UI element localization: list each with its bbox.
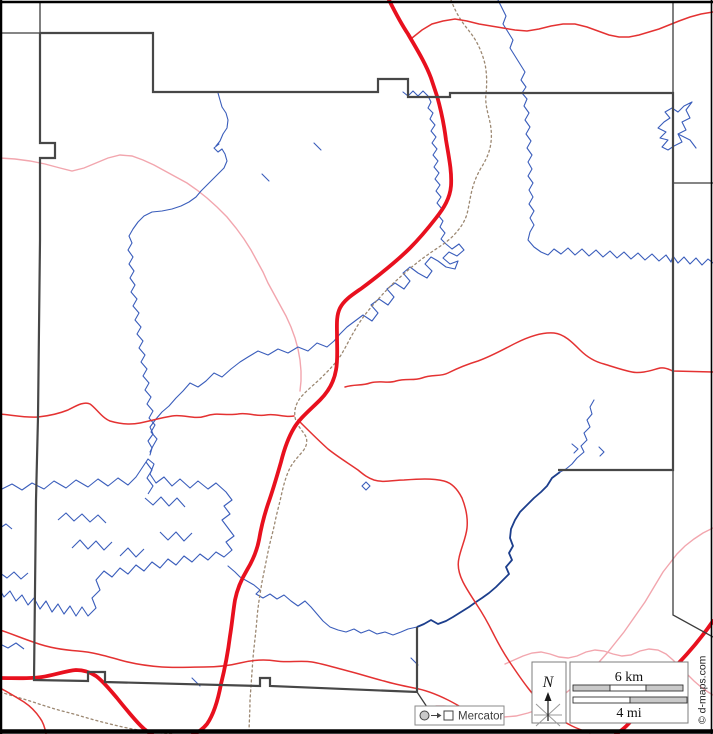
lake-finger-5 bbox=[120, 548, 144, 557]
stream-tick-3 bbox=[362, 482, 370, 490]
stream-tick-7 bbox=[599, 447, 604, 456]
scale-km-label: 6 km bbox=[615, 670, 644, 685]
north-label: N bbox=[542, 674, 555, 691]
north-indicator: N bbox=[532, 662, 566, 726]
scale-mi-label: 4 mi bbox=[616, 706, 641, 721]
map-canvas: N 6 km 4 mi Me bbox=[0, 0, 713, 734]
lake-west-bit-1 bbox=[0, 572, 28, 579]
lake-finger-3 bbox=[145, 497, 185, 507]
lake-arm-north bbox=[146, 462, 153, 494]
lake-finger-1 bbox=[58, 513, 106, 523]
river-middle-meanders bbox=[148, 91, 464, 455]
lake-finger-2 bbox=[72, 540, 112, 550]
lake-west-bit-3 bbox=[0, 643, 24, 649]
map-frame bbox=[0, 0, 713, 734]
scale-bar: 6 km 4 mi bbox=[570, 662, 688, 723]
pink-road-northwest-diagonal bbox=[0, 155, 301, 391]
pond-northeast bbox=[658, 102, 696, 150]
flat-map-square-icon bbox=[444, 711, 453, 720]
outline-map: N 6 km 4 mi Me bbox=[0, 0, 713, 734]
trail-main bbox=[249, 0, 491, 734]
trail-bottom-left bbox=[0, 692, 172, 734]
stream-tick-2 bbox=[314, 143, 321, 150]
projection-label: Mercator bbox=[458, 711, 504, 723]
dashed-trails bbox=[0, 0, 491, 734]
red-road-bottom-left bbox=[0, 688, 46, 734]
river-south-headwater bbox=[560, 400, 594, 472]
highway-main bbox=[193, 0, 451, 734]
scale-mi-bar bbox=[573, 697, 687, 703]
lake-finger-4 bbox=[160, 532, 192, 541]
red-road-east-from-junction bbox=[345, 333, 713, 387]
river-bottom bbox=[228, 566, 417, 635]
rivers bbox=[128, 0, 713, 686]
copyright-text: © d-maps.com bbox=[697, 655, 709, 724]
neighbor-boundaries bbox=[0, 2, 713, 712]
projection-legend: Mercator bbox=[415, 706, 504, 725]
red-road-west-from-junction bbox=[0, 403, 294, 424]
stream-tick-1 bbox=[262, 174, 269, 181]
stream-tick-6 bbox=[572, 444, 578, 453]
globe-circle-icon bbox=[420, 711, 429, 720]
scale-km-bar bbox=[573, 685, 683, 691]
highways bbox=[0, 0, 713, 734]
red-roads bbox=[0, 12, 713, 734]
river-west bbox=[128, 93, 228, 452]
red-road-top-east bbox=[412, 12, 713, 38]
county-boundary-main bbox=[34, 33, 673, 692]
river-navy-boundary bbox=[417, 472, 560, 627]
minor-roads-pink bbox=[0, 155, 713, 717]
boundary-southeast bbox=[673, 470, 713, 637]
